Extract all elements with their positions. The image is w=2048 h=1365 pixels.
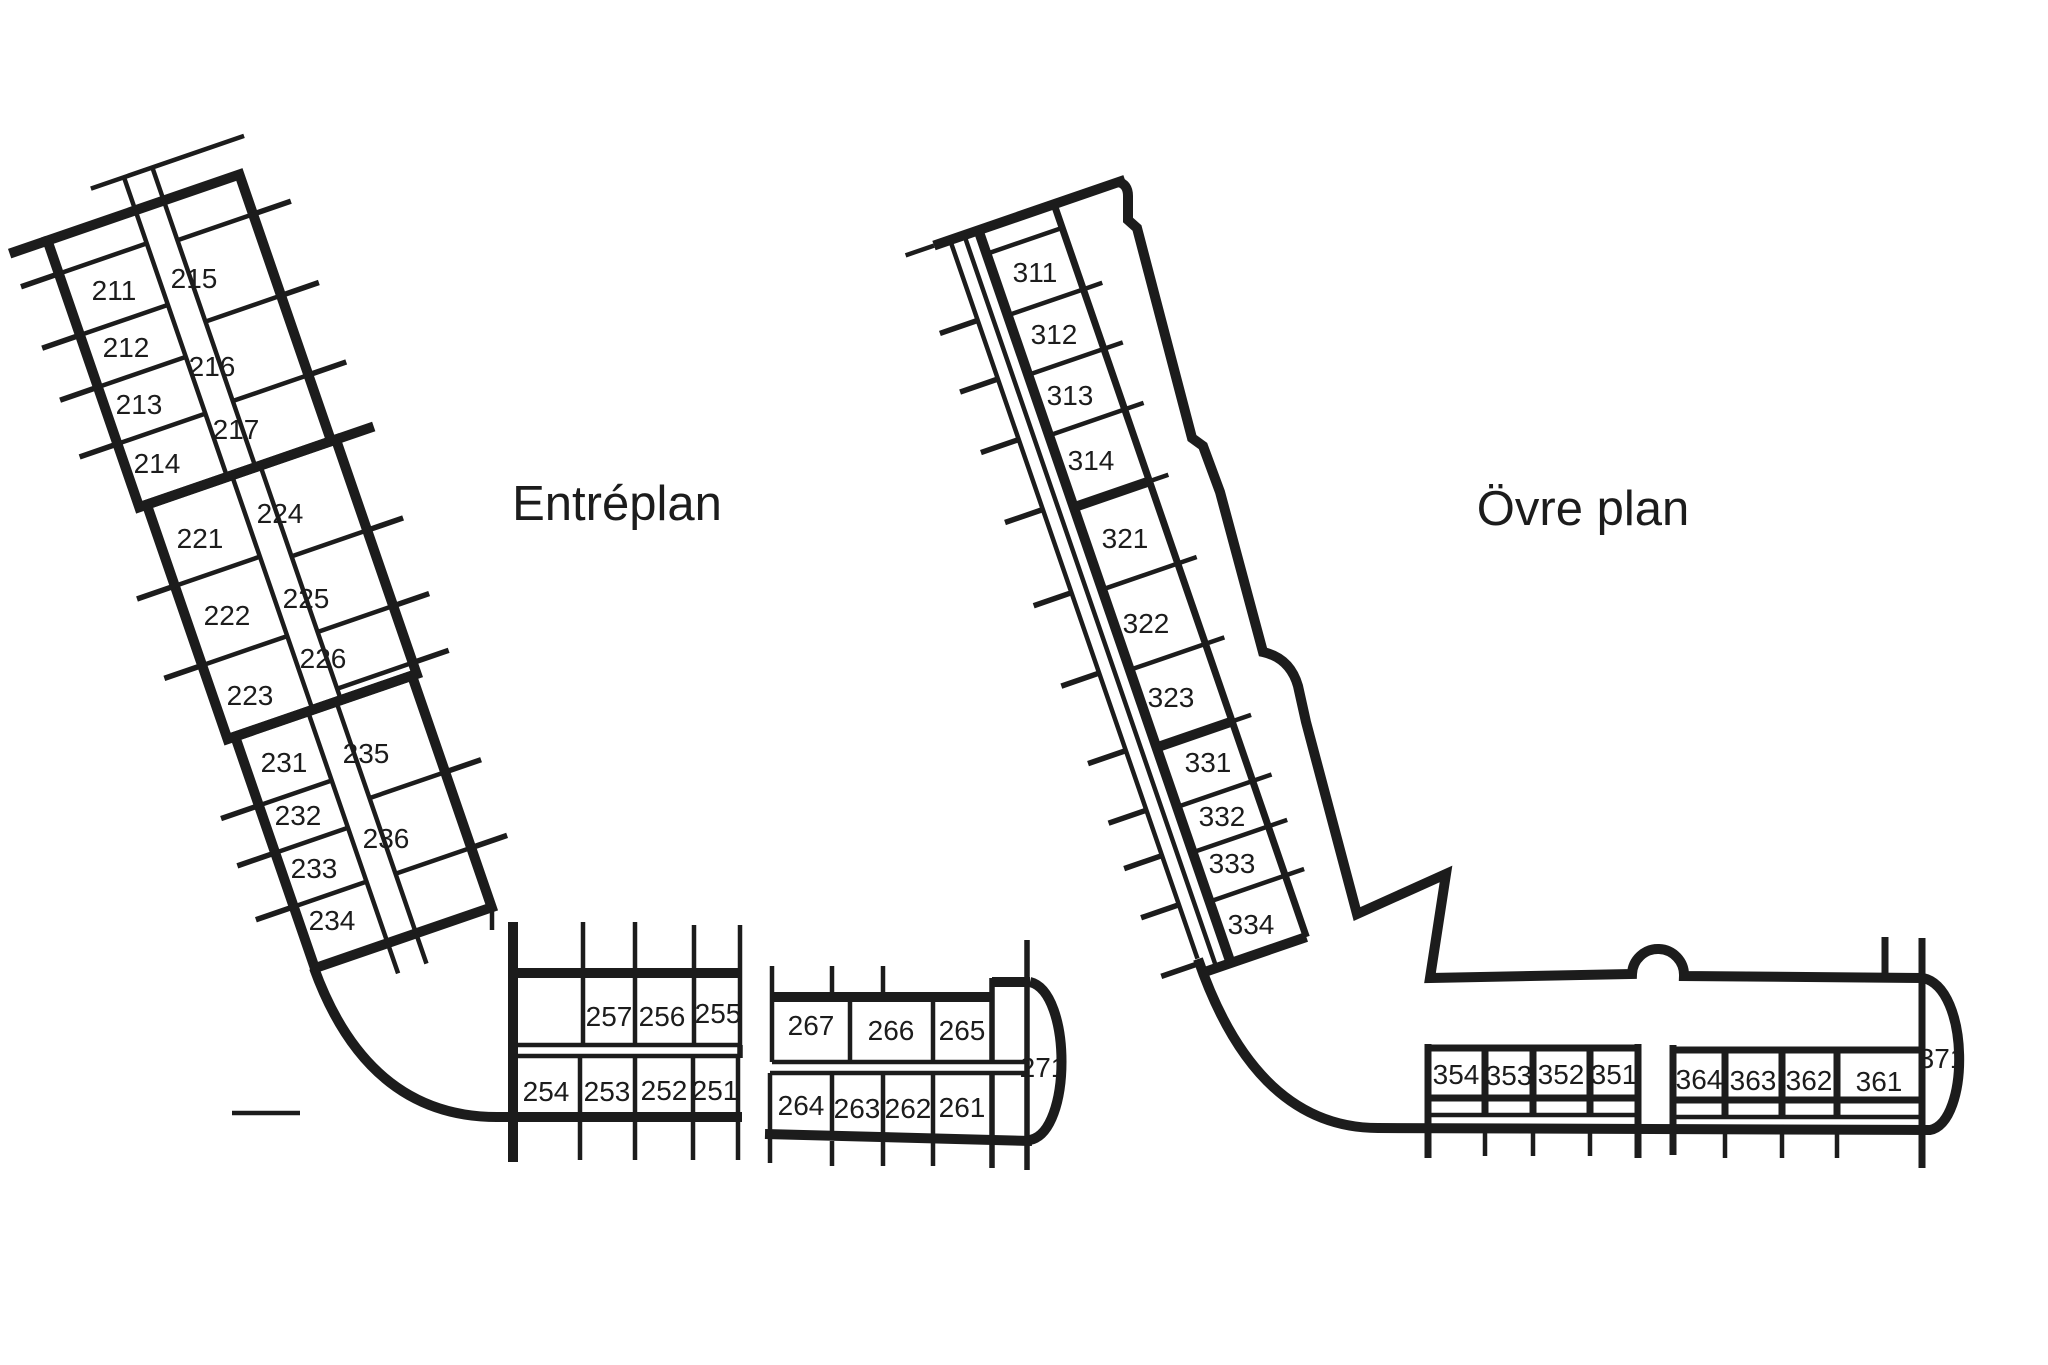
room-label-352: 352 (1538, 1059, 1585, 1090)
room-label-256: 256 (639, 1001, 686, 1032)
room-label-234: 234 (309, 905, 356, 936)
room-label-223: 223 (227, 680, 274, 711)
room-label-233: 233 (291, 853, 338, 884)
floor-plan-diagram: Entréplan 211212213214215216217221222223… (0, 0, 2048, 1365)
room-label-263: 263 (834, 1093, 881, 1124)
room-label-262: 262 (885, 1093, 932, 1124)
room-label-236: 236 (363, 823, 410, 854)
room-label-214: 214 (134, 448, 181, 479)
room-label-371: 371 (1919, 1043, 1966, 1074)
entreplan-curved-wall (314, 968, 497, 1117)
room-label-353: 353 (1486, 1060, 1533, 1091)
room-label-311: 311 (1013, 257, 1058, 288)
ovreplan-room-labels: 3113123133143213223233313323333343543533… (1013, 257, 1966, 1097)
room-label-322: 322 (1123, 608, 1170, 639)
room-label-217: 217 (213, 414, 260, 445)
entreplan-wing-walls (0, 127, 545, 1017)
room-label-323: 323 (1148, 682, 1195, 713)
room-label-225: 225 (283, 583, 330, 614)
room-label-361: 361 (1856, 1066, 1903, 1097)
room-label-321: 321 (1102, 523, 1149, 554)
room-label-265: 265 (939, 1015, 986, 1046)
room-label-254: 254 (523, 1076, 570, 1107)
room-label-333: 333 (1209, 848, 1256, 879)
room-label-364: 364 (1676, 1064, 1723, 1095)
floor-title-entreplan: Entréplan (512, 477, 722, 531)
room-label-224: 224 (257, 498, 304, 529)
room-label-313: 313 (1047, 380, 1094, 411)
room-label-235: 235 (343, 738, 390, 769)
entreplan-bottom-walls (495, 922, 1062, 1170)
room-label-362: 362 (1786, 1065, 1833, 1096)
room-label-266: 266 (868, 1015, 915, 1046)
room-label-351: 351 (1591, 1059, 1638, 1090)
room-label-314: 314 (1068, 445, 1115, 476)
room-label-267: 267 (788, 1010, 835, 1041)
room-label-334: 334 (1228, 909, 1275, 940)
room-label-226: 226 (300, 643, 347, 674)
room-label-212: 212 (103, 332, 150, 363)
room-label-257: 257 (586, 1001, 633, 1032)
room-label-231: 231 (261, 747, 308, 778)
room-label-211: 211 (92, 275, 137, 306)
room-label-221: 221 (177, 523, 224, 554)
room-label-222: 222 (204, 600, 251, 631)
ovreplan-outer-wall (1118, 182, 1959, 1130)
ovreplan-wing-walls (906, 180, 1378, 988)
floor-title-ovre-plan: Övre plan (1477, 482, 1689, 536)
floor-entreplan: Entréplan 211212213214215216217221222223… (0, 127, 1066, 1170)
room-label-216: 216 (189, 351, 236, 382)
room-label-264: 264 (778, 1090, 825, 1121)
floor-ovre-plan: Övre plan 311312313314321322323331332333… (906, 180, 1966, 1168)
entreplan-curve-ticks (232, 906, 492, 1113)
room-label-312: 312 (1031, 319, 1078, 350)
room-label-255: 255 (695, 998, 742, 1029)
room-label-261: 261 (939, 1092, 986, 1123)
room-label-331: 331 (1185, 747, 1232, 778)
room-label-252: 252 (641, 1075, 688, 1106)
room-label-253: 253 (584, 1076, 631, 1107)
room-label-213: 213 (116, 389, 163, 420)
room-label-363: 363 (1730, 1065, 1777, 1096)
room-label-232: 232 (275, 800, 322, 831)
room-label-251: 251 (692, 1075, 739, 1106)
room-label-271: 271 (1020, 1052, 1067, 1083)
room-label-354: 354 (1433, 1059, 1480, 1090)
room-label-332: 332 (1199, 801, 1246, 832)
room-label-215: 215 (171, 263, 218, 294)
